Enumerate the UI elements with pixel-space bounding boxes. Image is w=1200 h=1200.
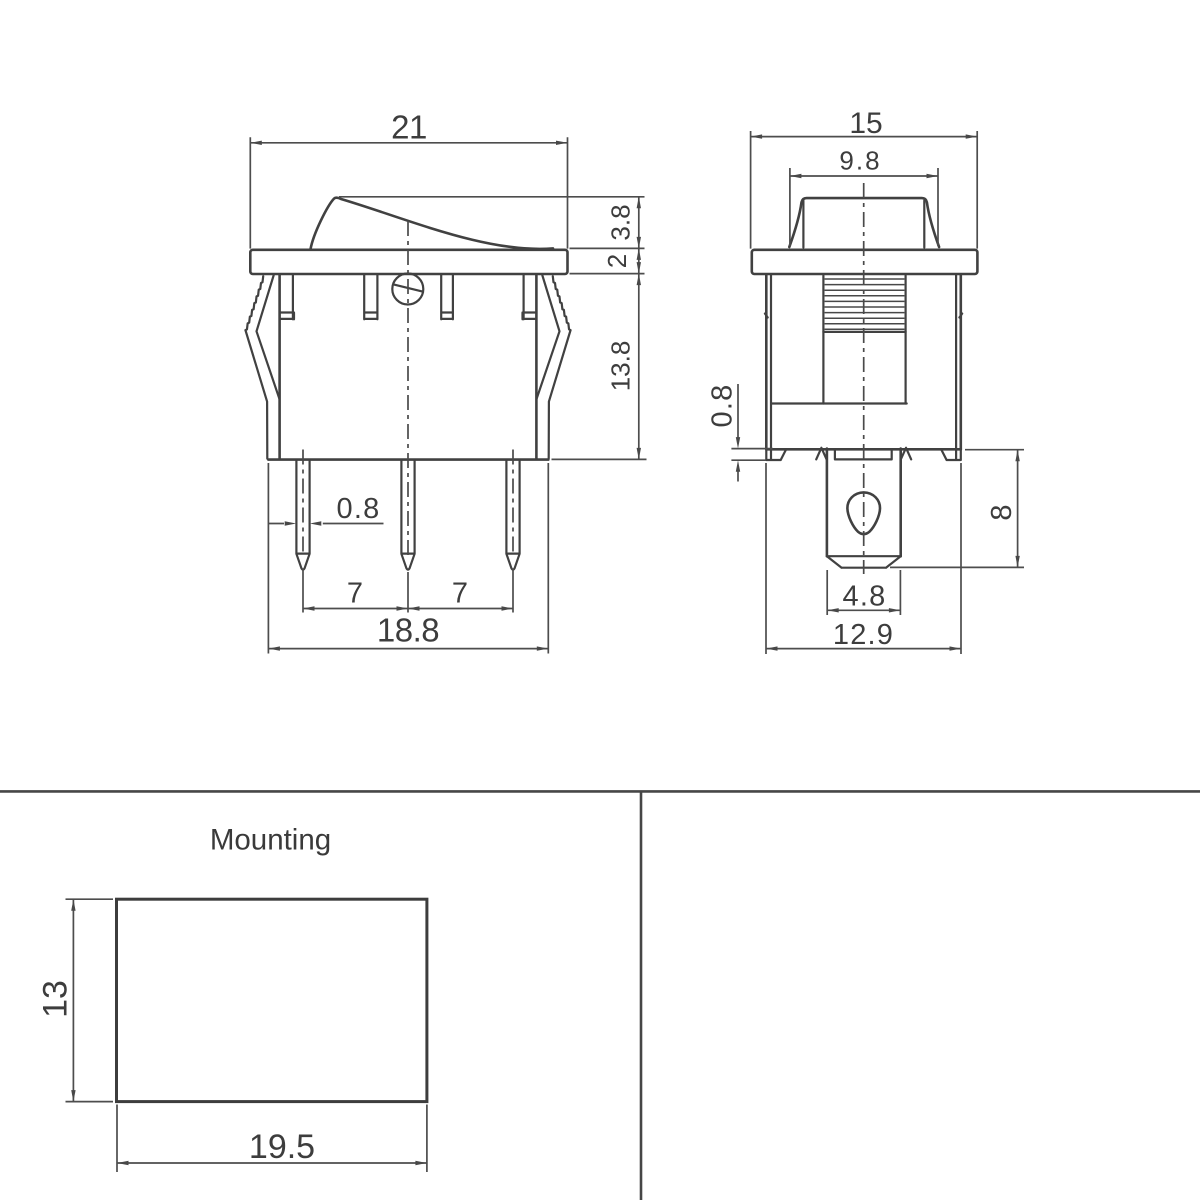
- svg-text:21: 21: [391, 109, 427, 146]
- svg-text:3.8: 3.8: [606, 204, 636, 240]
- svg-text:Mounting: Mounting: [210, 824, 331, 857]
- svg-text:7: 7: [347, 578, 364, 610]
- svg-text:7: 7: [452, 578, 469, 610]
- svg-text:13.8: 13.8: [606, 341, 636, 392]
- svg-text:0.8: 0.8: [337, 493, 381, 525]
- svg-text:13: 13: [37, 980, 75, 1018]
- svg-text:9.8: 9.8: [839, 146, 881, 176]
- svg-text:0.8: 0.8: [707, 384, 739, 428]
- svg-text:8: 8: [986, 503, 1018, 520]
- svg-text:15: 15: [849, 107, 882, 140]
- svg-text:19.5: 19.5: [249, 1128, 315, 1166]
- svg-text:4.8: 4.8: [843, 581, 887, 613]
- svg-text:2: 2: [602, 254, 632, 268]
- svg-text:12.9: 12.9: [833, 619, 894, 651]
- svg-text:18.8: 18.8: [377, 612, 439, 649]
